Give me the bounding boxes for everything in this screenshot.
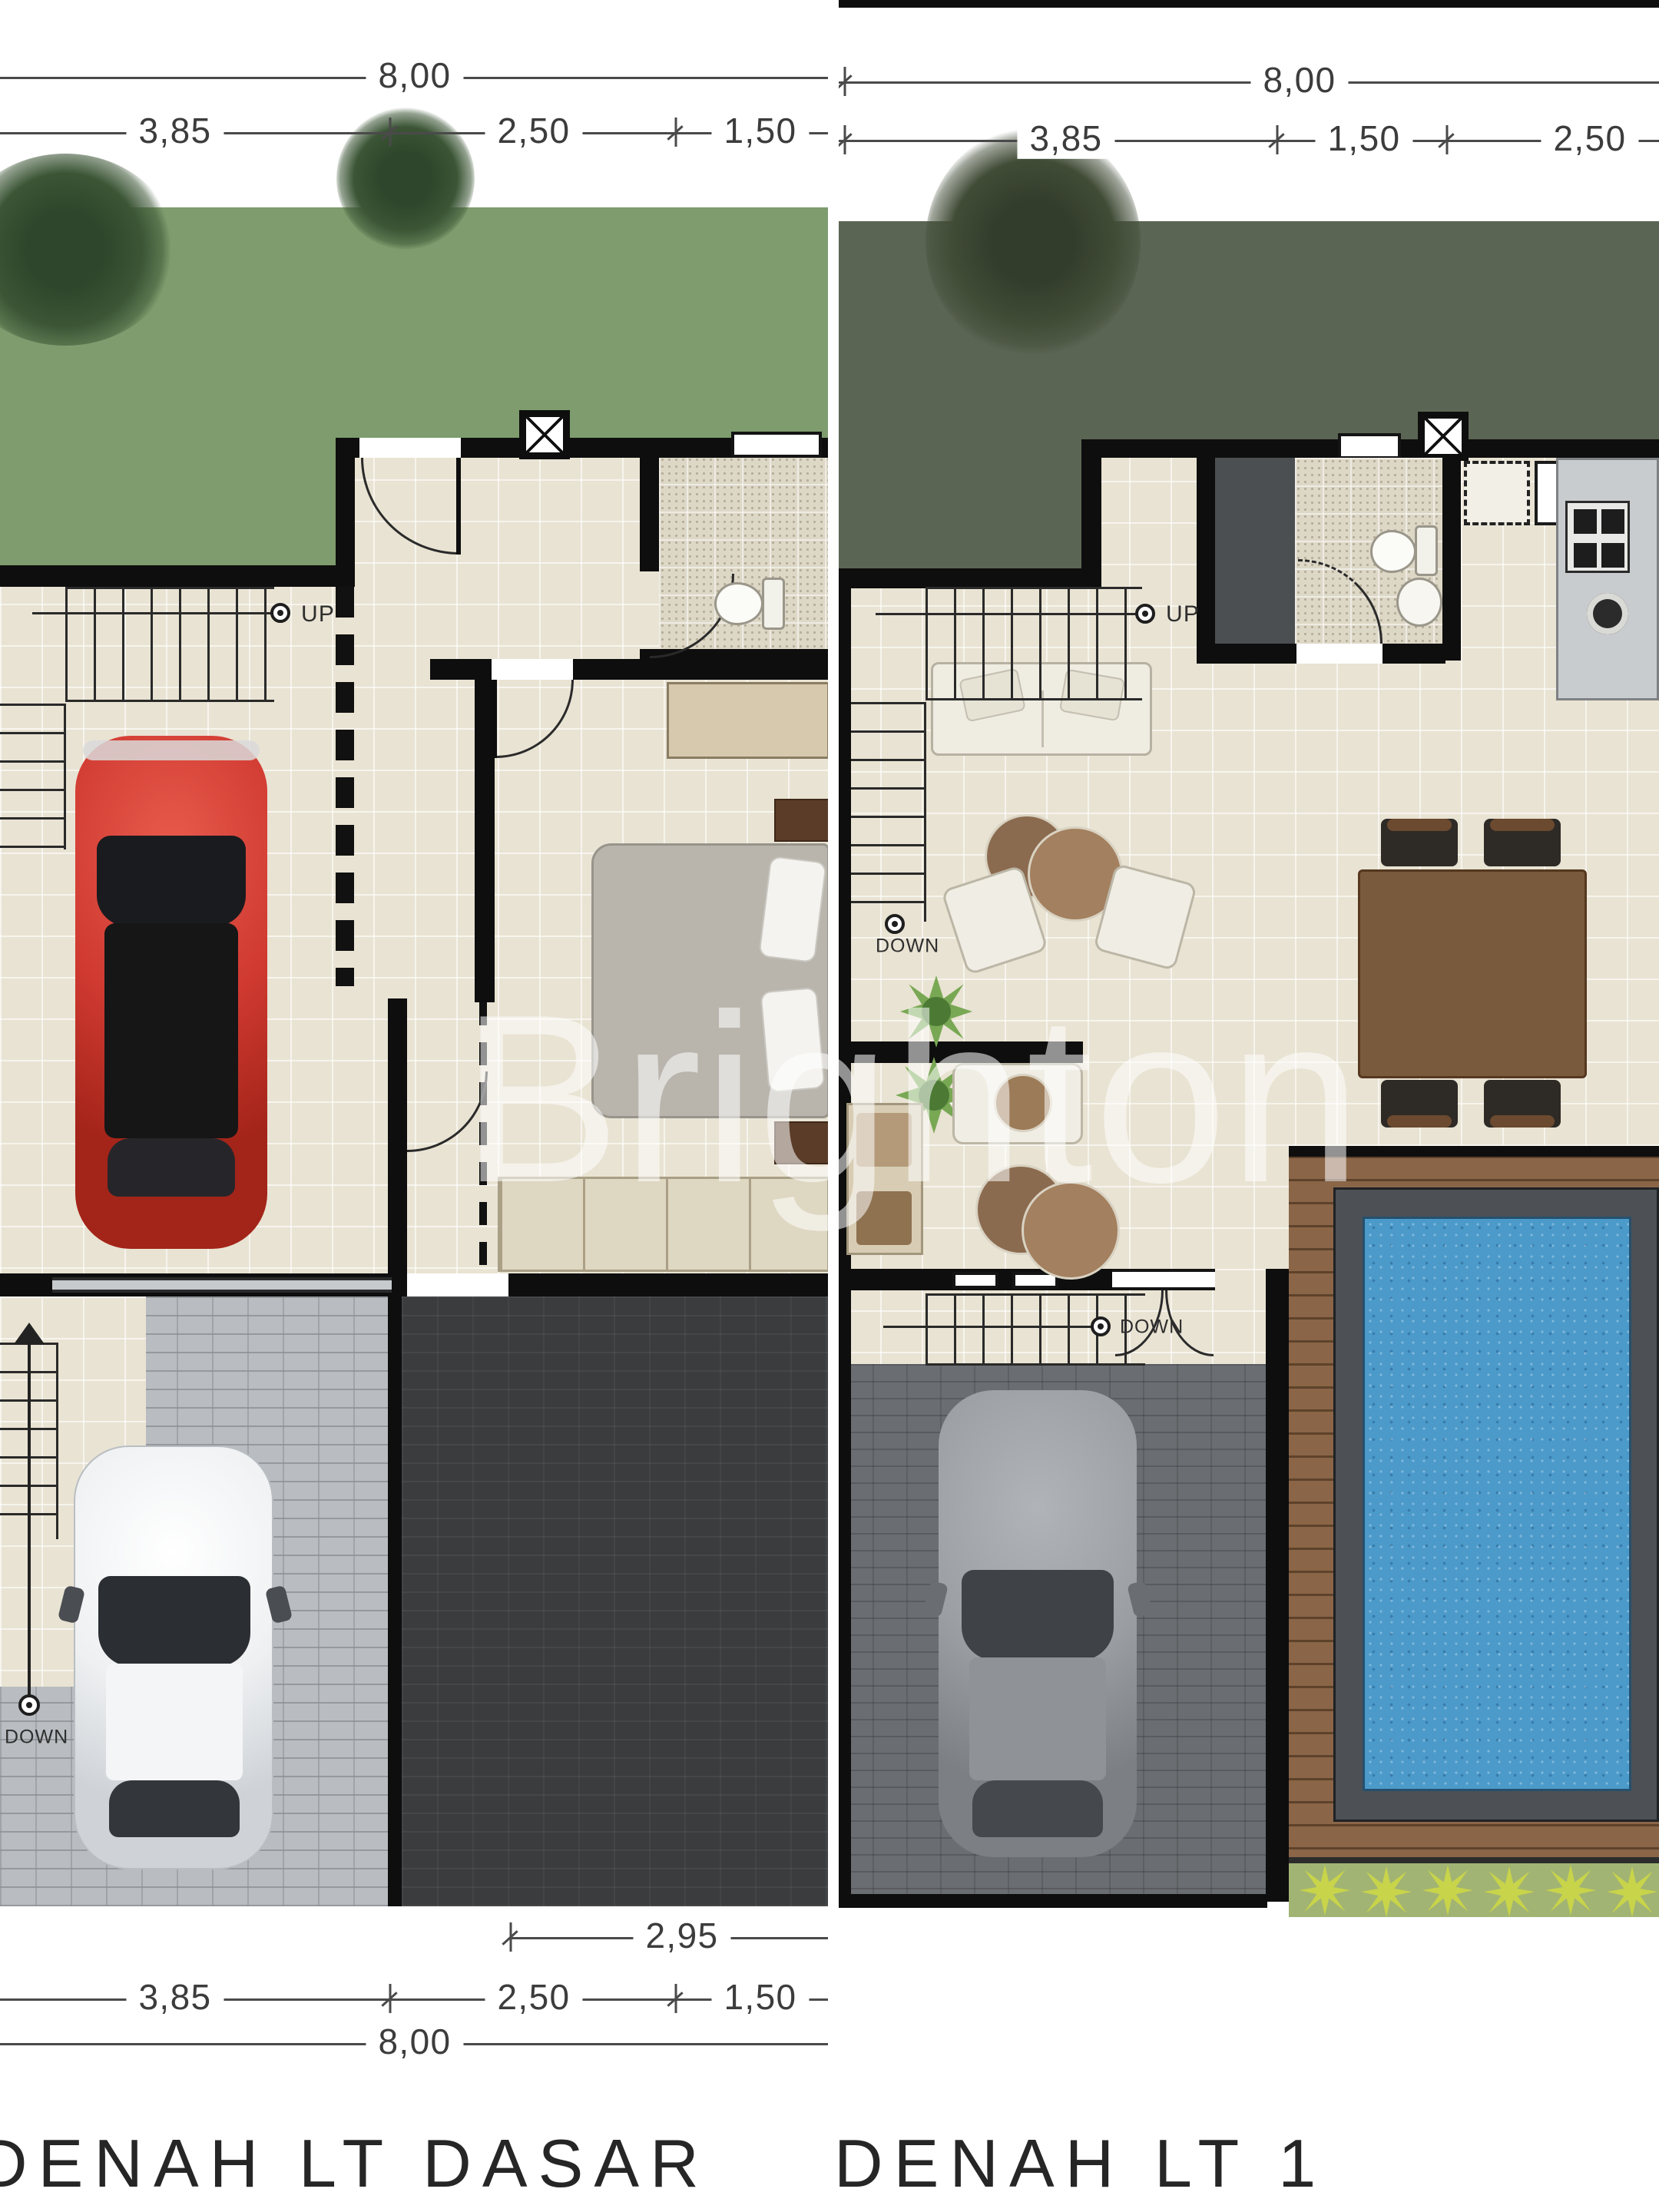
dimension-label: 8,00 (1250, 59, 1348, 101)
stair-arrow-icon (14, 1323, 45, 1344)
shrub-plant (1422, 1865, 1473, 1916)
dimension-line (839, 140, 1659, 142)
dimension-label: 8,00 (366, 55, 463, 96)
shrub-plant (1484, 1866, 1535, 1917)
gray-car (939, 1390, 1137, 1857)
partition-dashed (336, 587, 354, 986)
white-car (74, 1445, 273, 1869)
dimension-label: 2,50 (485, 110, 582, 151)
stair-up-label: UP (301, 601, 335, 628)
stair-direction-icon (1091, 1316, 1111, 1336)
upper-floor-title: DENAH LT 1 (834, 2124, 1326, 2203)
dimension-line (0, 132, 829, 134)
wall (1289, 1146, 1659, 1157)
window (952, 1272, 998, 1289)
stair-down-label: DOWN (876, 935, 939, 958)
window (731, 432, 822, 458)
bench-cushion (856, 1113, 912, 1167)
upper-top-border (839, 0, 1659, 8)
car-roof (969, 1657, 1106, 1780)
potted-plant (900, 975, 972, 1048)
wall (1197, 456, 1215, 661)
upper-lawn-side (839, 439, 1101, 568)
dimension-label: 3,85 (1017, 118, 1114, 159)
wall (839, 1894, 1267, 1908)
staircase-up (926, 587, 1142, 700)
wok-burner (1587, 593, 1628, 634)
bench-cushion (856, 1191, 912, 1245)
pillow (760, 987, 825, 1093)
stair-down-label: DOWN (5, 1727, 68, 1749)
car-windshield (962, 1570, 1114, 1661)
kitchen-cabinet (1464, 461, 1530, 525)
dimension-label: 8,00 (366, 2021, 463, 2062)
stair-leader-line (876, 613, 1144, 615)
wall (640, 456, 659, 571)
ground-lawn-side (0, 438, 338, 567)
shrub-plant (1607, 1866, 1657, 1917)
vent-shaft-symbol (519, 410, 570, 459)
dining-chair (1484, 1080, 1561, 1128)
wall (1081, 439, 1101, 588)
wall (430, 659, 829, 680)
dimension-label: 1,50 (711, 110, 809, 151)
car-rear-window (109, 1780, 240, 1837)
car-windshield (98, 1576, 250, 1667)
ground-dark-lot (402, 1296, 829, 1906)
dimension-label: 2,50 (1541, 118, 1638, 159)
dining-chair (1484, 819, 1561, 866)
car-rear-window (972, 1780, 1103, 1837)
planter-edge (1289, 1857, 1659, 1863)
french-door-frame (1112, 1269, 1215, 1290)
sink (1396, 578, 1442, 627)
bathroom-door-opening (1296, 644, 1382, 664)
dimension-tick (389, 118, 392, 147)
kitchen-counter (1556, 458, 1659, 700)
staircase-up (65, 587, 274, 702)
nightstand (774, 799, 829, 842)
rear-door-opening (407, 1273, 508, 1296)
dining-chair (1381, 819, 1458, 866)
wall (839, 568, 1101, 588)
toilet-tank (1415, 525, 1438, 576)
bedroom-door-leaf (492, 680, 497, 758)
wall (1442, 456, 1461, 661)
stair-direction-icon (270, 603, 290, 623)
dimension-tick (675, 118, 677, 147)
bench-seat (846, 1103, 923, 1255)
entry-door-opening (359, 438, 461, 458)
wall (1266, 1269, 1289, 1902)
dimension-tick (844, 125, 846, 154)
dimension-label: 2,95 (633, 1915, 730, 1956)
shrub-plant (1361, 1866, 1412, 1917)
panel-divider (828, 0, 839, 2212)
dimension-line (839, 81, 1659, 84)
swimming-pool (1363, 1217, 1631, 1791)
stair-down-label: DOWN (1120, 1316, 1184, 1339)
dimension-label: 3,85 (126, 110, 224, 151)
stove-hob (1565, 501, 1630, 573)
palm-tree (336, 108, 475, 250)
dimension-line (0, 1998, 829, 2001)
staircase-return (851, 702, 926, 922)
dimension-label: 2,50 (485, 1976, 582, 2018)
car-roof (106, 1664, 243, 1780)
car-roof (104, 923, 238, 1138)
wall (0, 565, 355, 587)
car-rear-window (108, 1138, 235, 1197)
dimension-label: 3,85 (126, 1976, 224, 2018)
palm-tree (926, 127, 1141, 357)
stair-leader-line (32, 612, 280, 614)
car-windshield-trim (83, 740, 260, 760)
dining-table (1358, 869, 1587, 1078)
stair-up-label: UP (1166, 601, 1200, 628)
dining-chair (1381, 1080, 1458, 1128)
dimension-label: 1,50 (711, 1976, 809, 2018)
window (1338, 433, 1401, 459)
wall-dashed (479, 1002, 487, 1277)
ground-floor-title: DENAH LT DASAR (0, 2124, 710, 2203)
desk (667, 682, 829, 759)
stair-direction-icon (18, 1694, 40, 1716)
red-car (75, 736, 267, 1249)
staircase-down (926, 1293, 1145, 1366)
shower-area (1215, 458, 1295, 656)
wardrobe (498, 1177, 829, 1272)
nightstand (774, 1121, 829, 1164)
stair-direction-icon (1135, 604, 1155, 624)
shrub-plant (1300, 1865, 1350, 1916)
wall (839, 1041, 1083, 1063)
bedroom-door-opening (492, 659, 573, 680)
car-windshield (97, 836, 246, 926)
staircase-return (0, 704, 66, 849)
garage-door (52, 1277, 392, 1293)
toilet-tank (762, 578, 785, 630)
floor-plan-sheet: UP DOWN 8,00 3,85 2,50 1,50 2,95 (0, 0, 1659, 2212)
stair-direction-icon (885, 914, 905, 934)
dimension-tick (1277, 125, 1279, 154)
vent-shaft-symbol (1418, 412, 1469, 461)
dimension-label: 1,50 (1315, 118, 1412, 159)
stair-leader-line (28, 1343, 31, 1697)
dimension-tick (389, 1984, 392, 2013)
stair-leader-line (883, 1326, 1095, 1328)
entry-door-leaf (456, 458, 461, 555)
wall (388, 998, 407, 1277)
ottoman (994, 1074, 1052, 1132)
dimension-tick (844, 67, 846, 96)
wall (388, 1296, 402, 1906)
dimension-tick (510, 1922, 512, 1952)
shrub-plant (1545, 1865, 1596, 1916)
coffee-table (1022, 1181, 1120, 1280)
dimension-tick (675, 1984, 677, 2013)
dimension-tick (1446, 125, 1449, 154)
wall (336, 438, 355, 587)
